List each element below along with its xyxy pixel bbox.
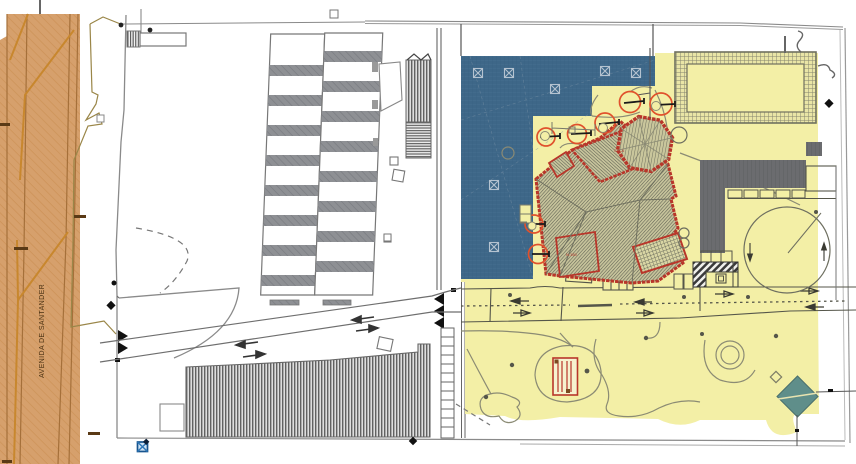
svg-text:P.1: P.1 [570,159,576,164]
svg-text:SALA: SALA [614,148,625,153]
svg-text:AVENIDA DE SANTANDER: AVENIDA DE SANTANDER [39,284,46,378]
svg-text:N.150: N.150 [566,252,577,257]
